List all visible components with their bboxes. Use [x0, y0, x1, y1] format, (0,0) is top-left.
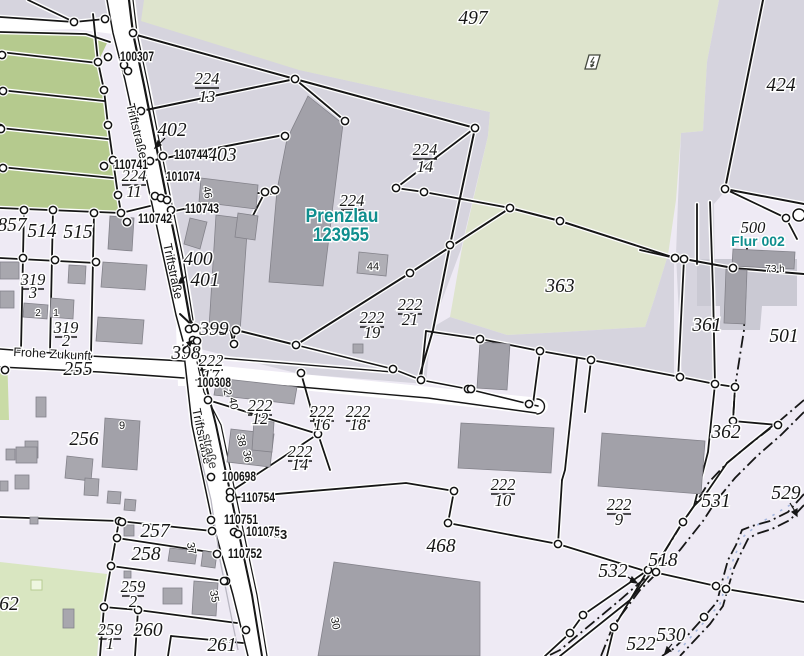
svg-text:110742: 110742	[138, 211, 172, 226]
svg-text:16: 16	[314, 415, 331, 434]
svg-text:14: 14	[292, 455, 309, 474]
svg-text:62: 62	[0, 594, 19, 615]
svg-text:529: 529	[771, 483, 801, 504]
svg-text:38: 38	[234, 433, 248, 447]
svg-text:9: 9	[119, 420, 125, 432]
svg-text:531: 531	[701, 491, 730, 512]
svg-text:37: 37	[184, 541, 198, 555]
svg-text:361: 361	[691, 315, 721, 336]
svg-text:14: 14	[417, 157, 434, 176]
svg-text:11: 11	[126, 182, 141, 201]
svg-text:257: 257	[140, 521, 171, 542]
svg-text:400: 400	[183, 249, 213, 270]
svg-text:1: 1	[53, 308, 59, 319]
svg-text:Prenzlau: Prenzlau	[306, 206, 379, 227]
svg-text:501: 501	[769, 326, 798, 347]
svg-text:256: 256	[69, 429, 99, 450]
svg-text:532: 532	[598, 561, 628, 582]
svg-text:21: 21	[402, 310, 419, 329]
svg-text:40: 40	[226, 396, 240, 410]
svg-text:515: 515	[63, 222, 93, 243]
svg-text:514: 514	[27, 221, 57, 242]
svg-text:110752: 110752	[228, 546, 262, 561]
svg-text:402: 402	[157, 120, 187, 141]
svg-text:46: 46	[200, 185, 214, 199]
svg-text:36: 36	[240, 449, 254, 463]
svg-text:100307: 100307	[120, 49, 154, 64]
svg-text:424: 424	[766, 75, 796, 96]
svg-text:101075: 101075	[246, 524, 280, 539]
svg-text:110743: 110743	[185, 201, 219, 216]
svg-text:497: 497	[458, 8, 489, 29]
svg-text:468: 468	[426, 536, 456, 557]
svg-text:44: 44	[367, 261, 379, 273]
svg-text:9: 9	[615, 510, 623, 529]
svg-text:10: 10	[495, 491, 512, 510]
svg-text:522: 522	[626, 634, 656, 655]
svg-text:12: 12	[252, 409, 269, 428]
svg-text:258: 258	[131, 544, 161, 565]
svg-text:857: 857	[0, 215, 28, 236]
svg-text:101074: 101074	[166, 169, 200, 184]
svg-text:398: 398	[170, 343, 201, 364]
svg-text:13: 13	[199, 87, 216, 106]
svg-text:224: 224	[195, 69, 220, 88]
svg-text:260: 260	[133, 620, 163, 641]
svg-text:19: 19	[364, 323, 381, 342]
svg-text:530: 530	[656, 625, 686, 646]
svg-text:73 h: 73 h	[765, 264, 784, 275]
svg-text:3: 3	[28, 283, 37, 302]
svg-text:110741: 110741	[114, 157, 148, 172]
svg-text:518: 518	[648, 550, 678, 571]
svg-text:100698: 100698	[222, 469, 256, 484]
svg-text:110744: 110744	[174, 147, 208, 162]
svg-text:35: 35	[207, 589, 221, 603]
svg-text:110754: 110754	[241, 490, 275, 505]
svg-text:403: 403	[207, 145, 237, 166]
svg-text:1: 1	[106, 634, 114, 653]
svg-text:Flur 002: Flur 002	[731, 233, 785, 249]
svg-text:362: 362	[710, 422, 741, 443]
svg-text:123955: 123955	[313, 225, 369, 246]
svg-text:30: 30	[328, 616, 342, 630]
svg-text:363: 363	[544, 276, 575, 297]
svg-text:399: 399	[198, 319, 229, 340]
svg-text:2: 2	[35, 308, 41, 319]
svg-text:261: 261	[207, 635, 236, 656]
svg-text:401: 401	[190, 270, 219, 291]
svg-text:2: 2	[129, 592, 137, 611]
svg-text:18: 18	[350, 415, 367, 434]
svg-text:100308: 100308	[197, 375, 231, 390]
svg-text:3: 3	[280, 527, 287, 542]
